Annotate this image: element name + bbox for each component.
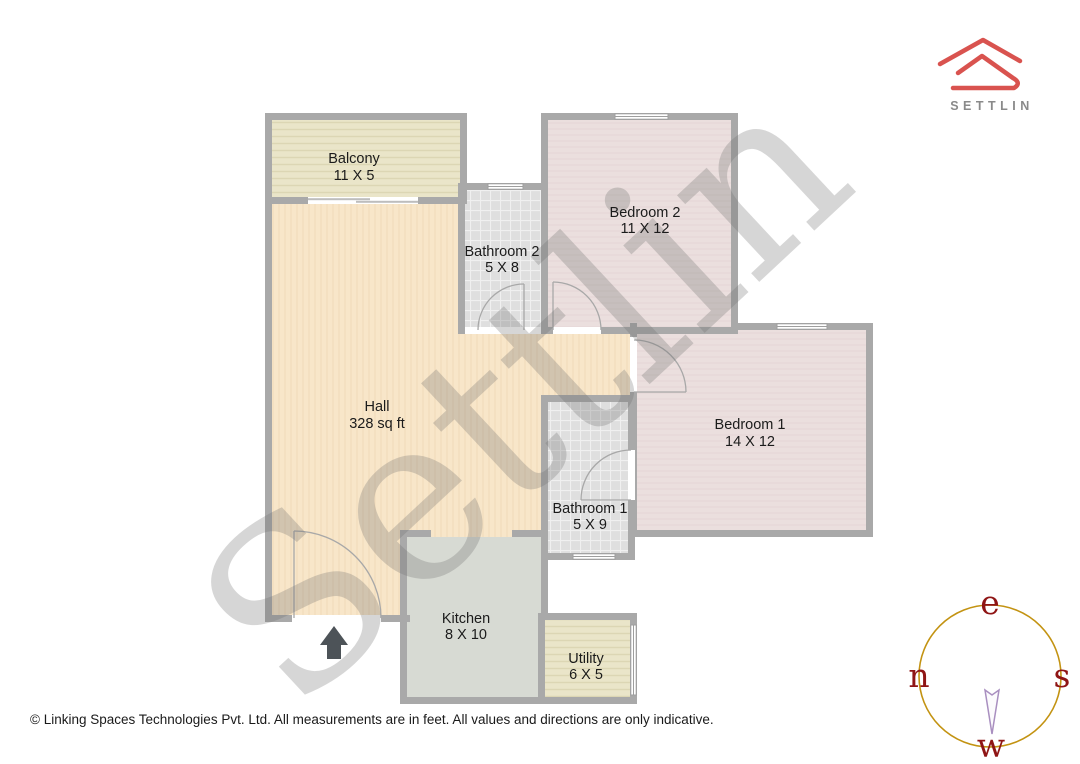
room-label-kitchen: Kitchen 8 X 10 xyxy=(442,611,490,643)
floor-plan: Settlin Balcony 11 X 5 Bathroom 2 5 X 8 … xyxy=(0,0,1080,764)
settlin-logo: SETTLIN xyxy=(940,40,1034,113)
room-label-bedroom1: Bedroom 1 14 X 12 xyxy=(715,417,786,450)
brand-name: SETTLIN xyxy=(950,99,1034,113)
room-label-balcony: Balcony 11 X 5 xyxy=(328,151,380,184)
room-name: Hall xyxy=(365,399,390,415)
compass-west: w xyxy=(977,726,1005,764)
window xyxy=(631,625,636,695)
room-dims: 5 X 9 xyxy=(573,517,607,533)
room-dims: 328 sq ft xyxy=(349,416,405,432)
floorplan-page: Settlin Balcony 11 X 5 Bathroom 2 5 X 8 … xyxy=(0,0,1080,764)
window xyxy=(488,184,523,189)
compass-east: e xyxy=(980,583,1000,622)
compass-icon: e s w n xyxy=(908,583,1070,764)
compass-north: n xyxy=(908,656,929,695)
room-dims: 11 X 12 xyxy=(621,221,670,237)
room-name: Bathroom 2 xyxy=(465,244,540,260)
roof-logo-icon xyxy=(940,40,1020,88)
room-name: Utility xyxy=(568,651,604,667)
window xyxy=(573,554,615,559)
room-name: Bedroom 2 xyxy=(610,205,681,221)
room-dims: 14 X 12 xyxy=(725,434,775,450)
room-dims: 8 X 10 xyxy=(445,627,487,643)
room-dims: 11 X 5 xyxy=(334,168,375,184)
room-dims: 5 X 8 xyxy=(485,260,519,276)
room-name: Balcony xyxy=(328,151,380,167)
room-name: Bedroom 1 xyxy=(715,417,786,433)
room-label-utility: Utility 6 X 5 xyxy=(568,651,604,683)
copyright-text: © Linking Spaces Technologies Pvt. Ltd. … xyxy=(30,712,714,727)
compass-south: s xyxy=(1054,656,1071,695)
sliding-door xyxy=(308,197,418,204)
room-name: Kitchen xyxy=(442,611,490,627)
room-name: Bathroom 1 xyxy=(553,501,628,517)
room-dims: 6 X 5 xyxy=(569,667,603,683)
